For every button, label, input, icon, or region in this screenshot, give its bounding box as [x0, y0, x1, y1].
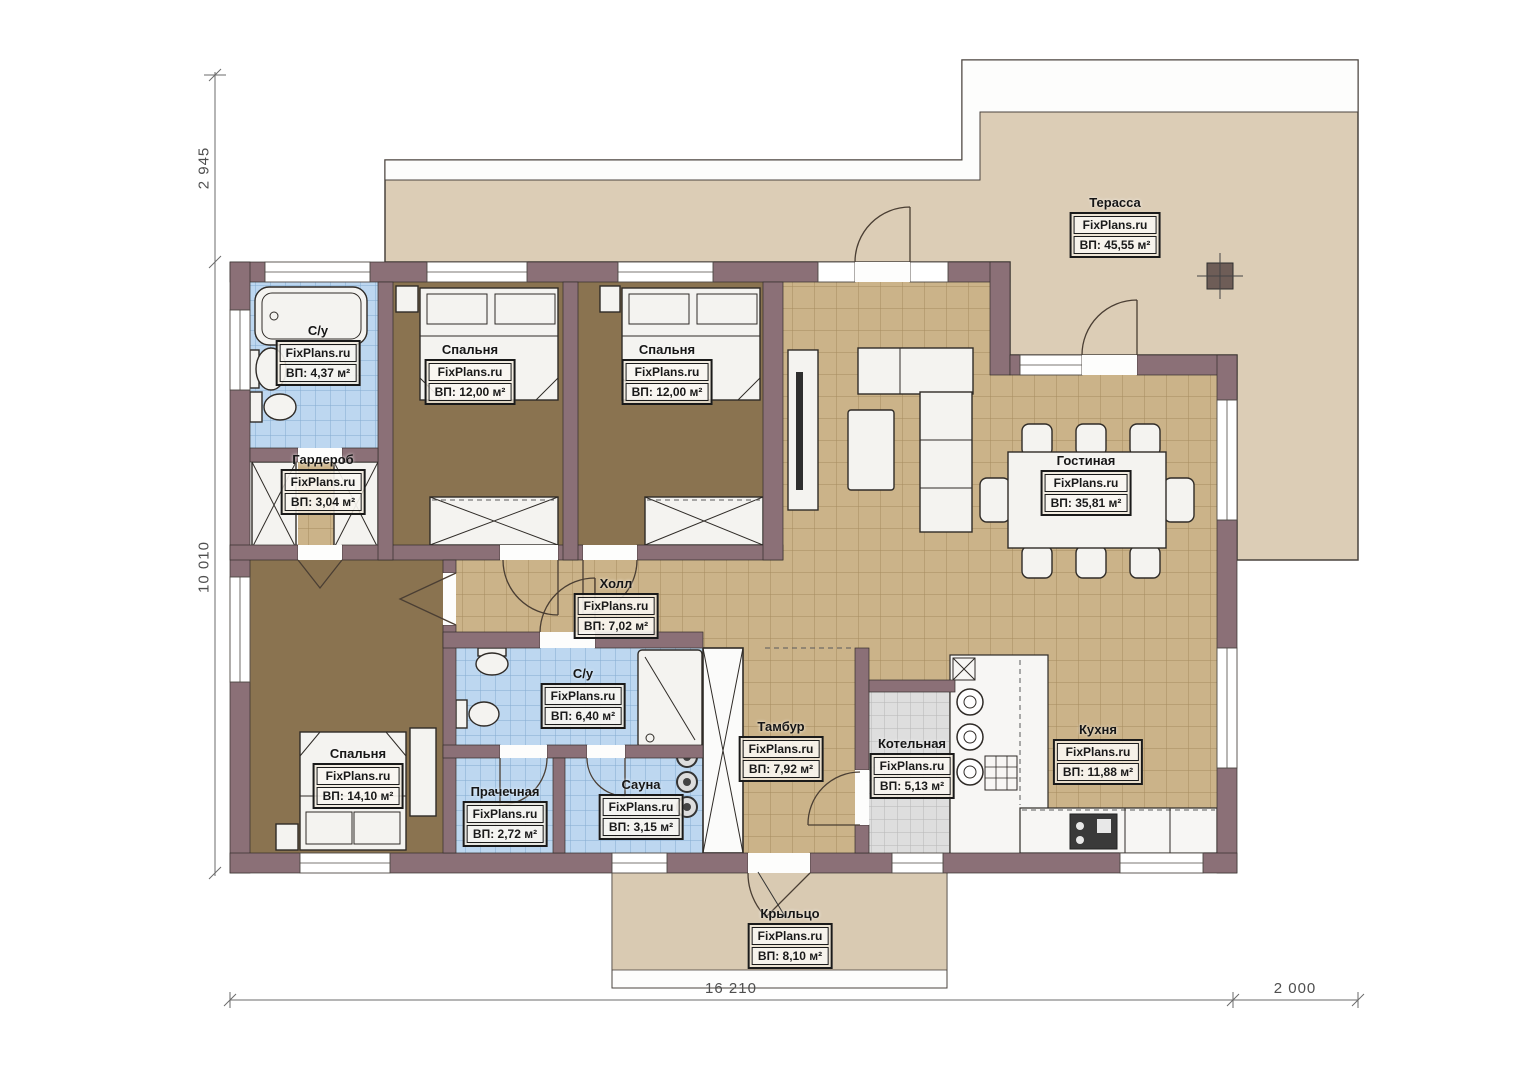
- room-label-vestibule: Тамбур FixPlans.ru ВП: 7,92 м²: [739, 719, 824, 782]
- watermark: FixPlans.ru: [874, 757, 951, 775]
- room-name: С/у: [573, 666, 593, 681]
- watermark: FixPlans.ru: [752, 927, 829, 945]
- room-area: ВП: 45,55 м²: [1074, 236, 1157, 254]
- coffee-table: [848, 410, 894, 490]
- room-name: Кухня: [1079, 722, 1117, 737]
- stove: [1070, 814, 1117, 849]
- room-name: Гостиная: [1057, 453, 1116, 468]
- room-label-kitchen: Кухня FixPlans.ru ВП: 11,88 м²: [1053, 722, 1143, 785]
- room-info-box: FixPlans.ru ВП: 8,10 м²: [748, 923, 833, 969]
- hall-closet: [703, 648, 743, 853]
- room-info-box: FixPlans.ru ВП: 3,04 м²: [281, 469, 366, 515]
- room-label-bedroom-3: Спальня FixPlans.ru ВП: 14,10 м²: [313, 746, 404, 809]
- room-info-box: FixPlans.ru ВП: 45,55 м²: [1070, 212, 1161, 258]
- watermark: FixPlans.ru: [280, 344, 357, 362]
- room-label-wardrobe: Гардероб FixPlans.ru ВП: 3,04 м²: [281, 452, 366, 515]
- room-label-hall: Холл FixPlans.ru ВП: 7,02 м²: [574, 576, 659, 639]
- toilet: [456, 700, 499, 728]
- room-area: ВП: 11,88 м²: [1057, 763, 1139, 781]
- room-name: Прачечная: [471, 784, 540, 799]
- watermark: FixPlans.ru: [1074, 216, 1157, 234]
- room-label-bedroom-2: Спальня FixPlans.ru ВП: 12,00 м²: [622, 342, 713, 405]
- room-info-box: FixPlans.ru ВП: 7,02 м²: [574, 593, 659, 639]
- room-info-box: FixPlans.ru ВП: 3,15 м²: [599, 794, 684, 840]
- room-name: Холл: [600, 576, 633, 591]
- room-name: Терасса: [1089, 195, 1141, 210]
- room-name: Спальня: [442, 342, 498, 357]
- room-info-box: FixPlans.ru ВП: 6,40 м²: [541, 683, 626, 729]
- dimension-left-main: 10 010: [196, 541, 213, 593]
- watermark: FixPlans.ru: [1045, 474, 1128, 492]
- room-label-bedroom-1: Спальня FixPlans.ru ВП: 12,00 м²: [425, 342, 516, 405]
- room-info-box: FixPlans.ru ВП: 5,13 м²: [870, 753, 955, 799]
- room-area: ВП: 3,15 м²: [603, 818, 680, 836]
- dimension-bottom-main: 16 210: [705, 980, 757, 997]
- room-area: ВП: 14,10 м²: [317, 787, 400, 805]
- room-area: ВП: 5,13 м²: [874, 777, 951, 795]
- room-info-box: FixPlans.ru ВП: 12,00 м²: [425, 359, 516, 405]
- room-name: Спальня: [330, 746, 386, 761]
- room-label-living-room: Гостиная FixPlans.ru ВП: 35,81 м²: [1041, 453, 1132, 516]
- room-label-boiler-room: Котельная FixPlans.ru ВП: 5,13 м²: [870, 736, 955, 799]
- room-info-box: FixPlans.ru ВП: 12,00 м²: [622, 359, 713, 405]
- room-area: ВП: 6,40 м²: [545, 707, 622, 725]
- room-label-bathroom-2: С/у FixPlans.ru ВП: 6,40 м²: [541, 666, 626, 729]
- room-area: ВП: 7,02 м²: [578, 617, 655, 635]
- room-label-terrace: Терасса FixPlans.ru ВП: 45,55 м²: [1070, 195, 1161, 258]
- wardrobe: [430, 497, 558, 545]
- room-label-porch: Крыльцо FixPlans.ru ВП: 8,10 м²: [748, 906, 833, 969]
- room-name: Сауна: [621, 777, 660, 792]
- wardrobe: [645, 497, 763, 545]
- watermark: FixPlans.ru: [603, 798, 680, 816]
- watermark: FixPlans.ru: [1057, 743, 1139, 761]
- room-info-box: FixPlans.ru ВП: 2,72 м²: [463, 801, 548, 847]
- room-area: ВП: 35,81 м²: [1045, 494, 1128, 512]
- room-area: ВП: 12,00 м²: [626, 383, 709, 401]
- tv-unit: [788, 350, 818, 510]
- room-name: Котельная: [878, 736, 946, 751]
- room-area: ВП: 4,37 м²: [280, 364, 357, 382]
- watermark: FixPlans.ru: [626, 363, 709, 381]
- floor-plan-page: Терасса FixPlans.ru ВП: 45,55 м² С/у Fix…: [0, 0, 1528, 1080]
- watermark: FixPlans.ru: [317, 767, 400, 785]
- room-name: Спальня: [639, 342, 695, 357]
- watermark: FixPlans.ru: [285, 473, 362, 491]
- room-area: ВП: 2,72 м²: [467, 825, 544, 843]
- room-name: С/у: [308, 323, 328, 338]
- watermark: FixPlans.ru: [545, 687, 622, 705]
- toilet: [250, 392, 296, 422]
- shower-cabin: [638, 650, 702, 748]
- dimension-left-top: 2 945: [196, 147, 213, 190]
- room-info-box: FixPlans.ru ВП: 7,92 м²: [739, 736, 824, 782]
- watermark: FixPlans.ru: [578, 597, 655, 615]
- watermark: FixPlans.ru: [743, 740, 820, 758]
- room-name: Крыльцо: [760, 906, 819, 921]
- room-area: ВП: 8,10 м²: [752, 947, 829, 965]
- watermark: FixPlans.ru: [467, 805, 544, 823]
- dimension-bottom-right: 2 000: [1274, 980, 1317, 997]
- room-label-sauna: Сауна FixPlans.ru ВП: 3,15 м²: [599, 777, 684, 840]
- room-name: Гардероб: [292, 452, 353, 467]
- room-label-laundry: Прачечная FixPlans.ru ВП: 2,72 м²: [463, 784, 548, 847]
- watermark: FixPlans.ru: [429, 363, 512, 381]
- sink: [476, 648, 508, 675]
- room-label-bathroom-master: С/у FixPlans.ru ВП: 4,37 м²: [276, 323, 361, 386]
- room-info-box: FixPlans.ru ВП: 4,37 м²: [276, 340, 361, 386]
- room-info-box: FixPlans.ru ВП: 35,81 м²: [1041, 470, 1132, 516]
- room-info-box: FixPlans.ru ВП: 11,88 м²: [1053, 739, 1143, 785]
- room-info-box: FixPlans.ru ВП: 14,10 м²: [313, 763, 404, 809]
- room-name: Тамбур: [757, 719, 804, 734]
- room-area: ВП: 7,92 м²: [743, 760, 820, 778]
- room-area: ВП: 12,00 м²: [429, 383, 512, 401]
- room-area: ВП: 3,04 м²: [285, 493, 362, 511]
